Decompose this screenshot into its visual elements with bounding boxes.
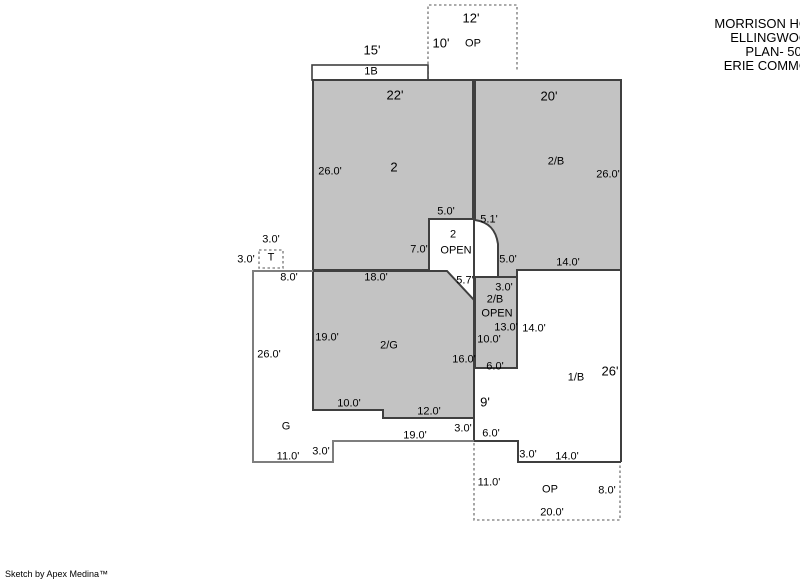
title-line: ELLINGWOO xyxy=(714,31,800,45)
bottom-open-porch-outline xyxy=(474,443,620,520)
floor-plan-drawing xyxy=(0,0,800,587)
sketch-canvas: 12'10'OP15'1B22'20'26.0'22/B26.0'5.0'5.1… xyxy=(0,0,800,587)
unit-2-area xyxy=(313,80,473,270)
1b-strip xyxy=(312,65,428,80)
title-block: MORRISON HO ELLINGWOO PLAN- 508 ERIE COM… xyxy=(714,17,800,73)
title-line: ERIE COMMO xyxy=(714,59,800,73)
top-open-porch-outline xyxy=(428,5,517,79)
unit-2g-area xyxy=(313,271,474,418)
unit-2b-area xyxy=(475,80,621,368)
title-line: MORRISON HO xyxy=(714,17,800,31)
t-stoop-outline xyxy=(259,250,283,268)
sketch-credit: Sketch by Apex Medina™ xyxy=(5,569,108,579)
title-line: PLAN- 508 xyxy=(714,45,800,59)
